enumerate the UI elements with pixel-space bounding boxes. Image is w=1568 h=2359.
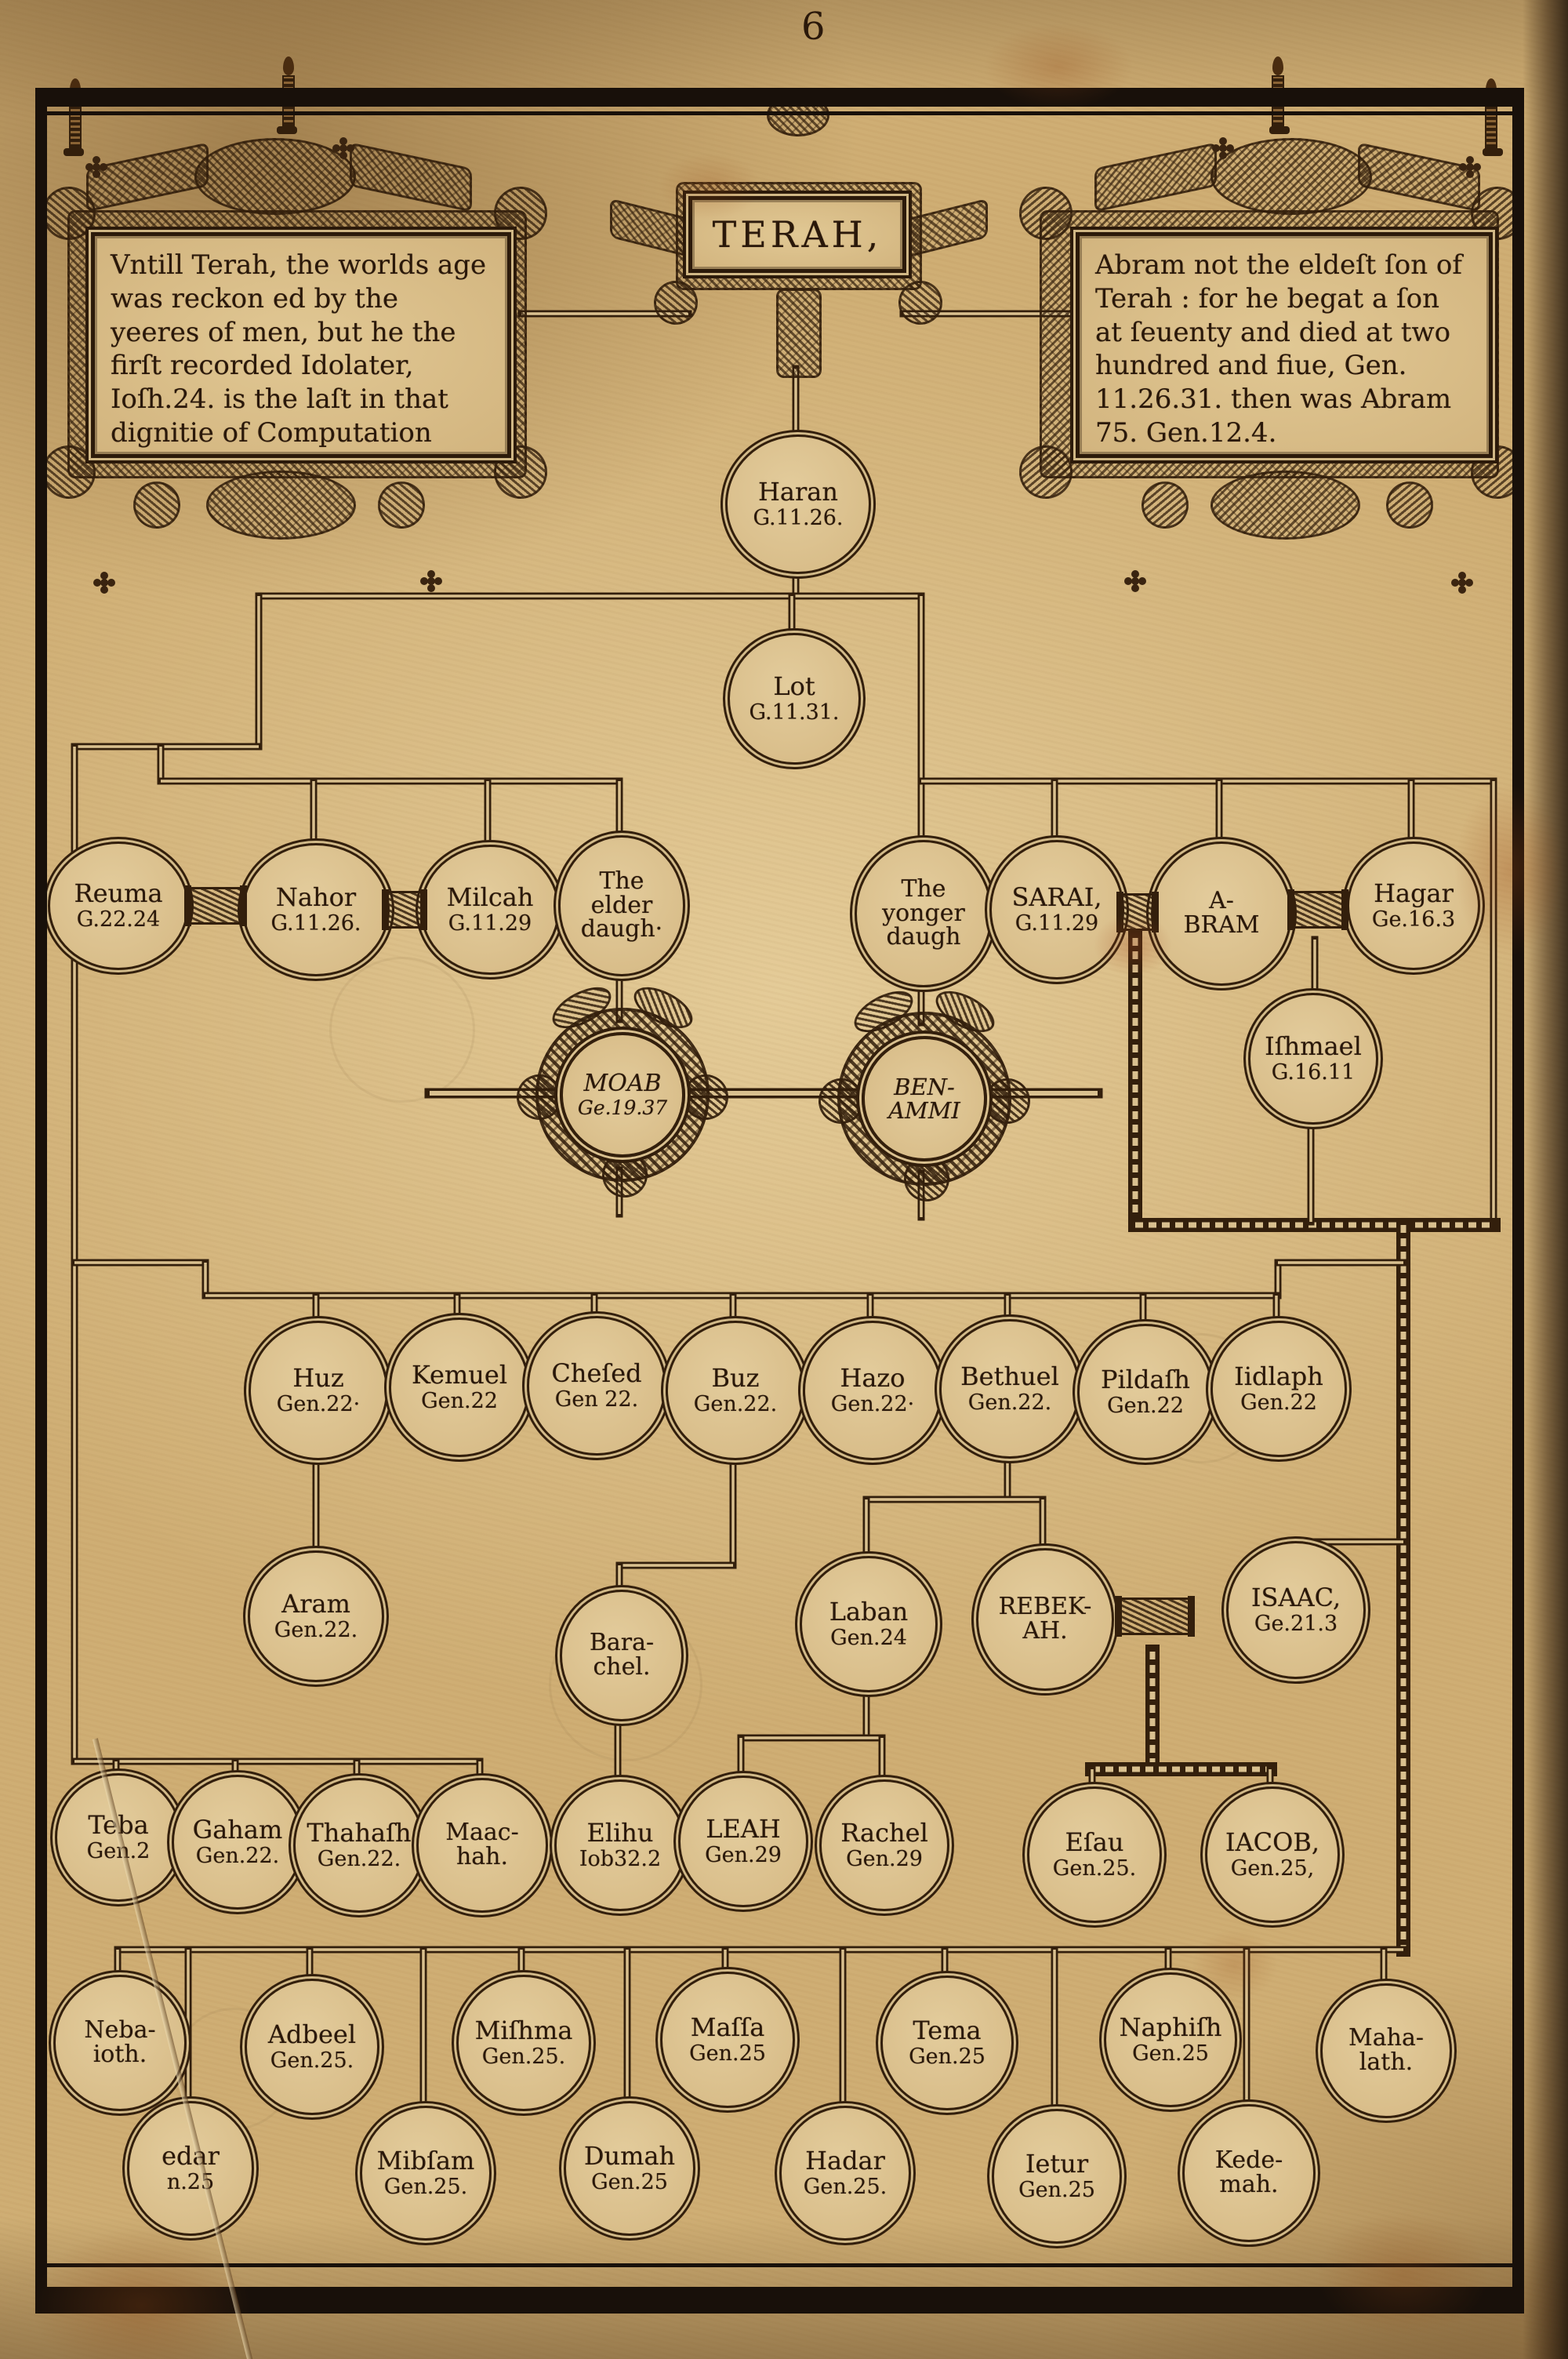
node-scripture-ref: Ge.19.37 (578, 1098, 667, 1118)
clasped-hands-icon (1115, 1598, 1195, 1635)
strapwork-crest (194, 138, 356, 215)
node-scripture-ref: Gen.25. (482, 2046, 565, 2068)
node-scripture-ref: n.25 (167, 2172, 214, 2194)
banner-tail (776, 289, 822, 378)
tree-node-maachah: Maac-hah. (416, 1778, 548, 1913)
strapwork-crest (1210, 138, 1372, 215)
tree-node-mishma: MiſhmaGen.25. (456, 1975, 591, 2111)
node-name: MOAB (583, 1071, 661, 1096)
strapwork-wing (350, 142, 472, 212)
tree-node-rebekah: REBEK-AH. (976, 1548, 1114, 1691)
quatrefoil-icon (100, 579, 108, 587)
node-scripture-ref: Gen.29 (705, 1845, 782, 1866)
tree-node-reuma: ReumaG.22.24 (48, 841, 189, 970)
strapwork-wing (1094, 142, 1217, 212)
node-name: Adbeel (268, 2022, 356, 2048)
node-name: AH. (1022, 1619, 1067, 1644)
quatrefoil-icon (93, 163, 100, 171)
scroll-knob-icon (985, 1078, 1030, 1124)
quatrefoil-icon (1458, 579, 1466, 587)
node-name: Ietur (1025, 2151, 1088, 2177)
node-name: Hadar (805, 2148, 885, 2174)
node-name: AMMI (888, 1099, 960, 1122)
tree-node-aram: AramGen.22. (248, 1550, 384, 1682)
tree-node-rachel: RachelGen.29 (819, 1779, 949, 1911)
tree-node-nahor: NahorG.11.26. (242, 843, 390, 976)
node-scripture-ref: Iob32.2 (579, 1848, 661, 1870)
node-name: Lot (773, 674, 815, 700)
tree-node-iidlaph: IidlaphGen.22 (1210, 1321, 1347, 1457)
strapwork-curl (1386, 482, 1433, 529)
tree-node-laban: LabanGen.24 (800, 1556, 938, 1692)
node-name: Hazo (840, 1365, 905, 1391)
tree-node-moab: MOABGe.19.37 (535, 1008, 710, 1182)
node-name: Hagar (1374, 881, 1454, 907)
node-name: edar (162, 2143, 220, 2169)
scroll-knob-icon (517, 1074, 562, 1120)
node-scripture-ref: G.11.29 (448, 913, 532, 935)
tree-node-tema: TemaGen.25 (880, 1976, 1014, 2110)
node-name: Thahaſh (307, 1820, 411, 1846)
tree-node-adbeel: AdbeelGen.25. (245, 1979, 379, 2115)
node-scripture-ref: Ge.16.3 (1372, 909, 1455, 931)
tree-node-thahash: ThahaſhGen.22. (293, 1778, 425, 1913)
tree-node-nebaioth: Neba-ioth. (53, 1975, 187, 2111)
node-scripture-ref: Gen.25 (909, 2046, 985, 2068)
strapwork-curl (1019, 445, 1073, 499)
tree-node-bethuel: BethuelGen.22. (939, 1319, 1080, 1459)
node-name: Kemuel (412, 1362, 507, 1388)
tree-node-haran: HaranG.11.26. (725, 434, 871, 574)
node-name: Eſau (1065, 1830, 1124, 1856)
node-name: daugh· (581, 918, 662, 942)
note-left: Vntill Terah, the worlds age was reckon … (91, 232, 511, 458)
node-name: REBEK- (999, 1595, 1092, 1619)
node-scripture-ref: G.22.24 (77, 909, 160, 931)
node-scripture-ref: G.11.26. (270, 913, 361, 935)
node-name: Reuma (74, 881, 162, 907)
node-name: BRAM (1183, 914, 1259, 938)
node-name: yonger (882, 902, 965, 926)
scroll-knob-icon (904, 1156, 949, 1201)
tree-node-pildash: PildaſhGen.22 (1077, 1324, 1214, 1460)
node-scripture-ref: Gen.22 (1240, 1392, 1317, 1414)
node-name: LEAH (706, 1816, 781, 1842)
node-name: Milcah (447, 885, 534, 911)
node-name: Maha- (1348, 2026, 1424, 2051)
node-scripture-ref: Gen 22. (555, 1389, 638, 1411)
frame-bottom-thin (35, 2263, 1524, 2267)
node-scripture-ref: Gen.22 (421, 1390, 498, 1412)
tree-node-dumah: DumahGen.25 (564, 2101, 695, 2236)
tree-node-gaham: GahamGen.22. (172, 1775, 303, 1910)
cartouche-core: MOABGe.19.37 (560, 1032, 685, 1158)
strapwork-wing (1358, 142, 1480, 212)
strapwork-curl (1142, 482, 1189, 529)
node-scripture-ref: Gen.29 (846, 1848, 923, 1870)
clasped-hands-icon (184, 887, 247, 925)
strapwork-wing (86, 142, 209, 212)
node-name: Bara- (590, 1631, 654, 1656)
node-name: mah. (1219, 2173, 1278, 2197)
node-name: Bethuel (960, 1364, 1059, 1390)
strapwork-scroll (1210, 471, 1360, 540)
node-scripture-ref: Gen.22. (694, 1394, 777, 1416)
quatrefoil-icon (339, 144, 347, 152)
node-scripture-ref: Gen.22· (831, 1394, 914, 1416)
tree-node-kemuel: KemuelGen.22 (389, 1318, 530, 1457)
frame-bottom-thick (35, 2287, 1524, 2314)
tree-node-ishmael: IſhmaelG.16.11 (1248, 993, 1378, 1125)
node-name: A- (1209, 889, 1234, 914)
tree-node-lot: LotG.11.31. (728, 633, 861, 765)
node-name: ioth. (93, 2043, 147, 2067)
node-name: Aram (281, 1591, 350, 1617)
node-name: Elihu (586, 1820, 653, 1846)
node-name: Maac- (445, 1821, 518, 1845)
tree-node-massa: MaſſaGen.25 (660, 1972, 795, 2108)
tree-node-mibsam: MibſamGen.25. (360, 2106, 492, 2241)
node-scripture-ref: Gen.22. (968, 1392, 1051, 1414)
node-name: daugh (887, 925, 961, 950)
tree-node-hagar: HagarGe.16.3 (1347, 841, 1480, 970)
node-name: Buz (712, 1365, 760, 1391)
node-scripture-ref: Gen.25, (1231, 1858, 1314, 1880)
node-scripture-ref: Gen.25 (1132, 2043, 1209, 2065)
node-scripture-ref: Gen.22· (277, 1394, 360, 1416)
node-scripture-ref: Gen.24 (830, 1627, 907, 1649)
frame-right (1512, 88, 1524, 2314)
node-name: Gaham (193, 1817, 283, 1843)
strapwork-curl (42, 445, 96, 499)
tree-node-hazo: HazoGen.22· (803, 1321, 942, 1460)
clasped-hands-icon (1287, 891, 1348, 929)
tree-node-huz: HuzGen.22· (249, 1321, 388, 1460)
strapwork-scroll (206, 471, 356, 540)
quatrefoil-icon (427, 577, 435, 585)
scroll-knob-icon (683, 1074, 728, 1120)
strapwork-curl (1019, 187, 1073, 240)
node-scripture-ref: Gen.22. (196, 1845, 279, 1867)
quatrefoil-icon (1131, 577, 1139, 585)
tree-node-buz: BuzGen.22. (666, 1321, 805, 1460)
node-name: IACOB, (1225, 1830, 1319, 1856)
tree-node-barachel: Bara-chel. (560, 1590, 684, 1721)
strapwork-curl (378, 482, 425, 529)
node-scripture-ref: Gen.25. (1053, 1858, 1136, 1880)
tree-node-milcah: MilcahG.11.29 (420, 845, 560, 975)
node-scripture-ref: Gen.25 (591, 2172, 668, 2194)
tree-node-teba: TebaGen.2 (55, 1773, 182, 1902)
tree-node-elder: Theelderdaugh· (558, 835, 685, 976)
clasped-hands-icon (382, 891, 427, 929)
node-scripture-ref: Gen.25. (804, 2176, 887, 2198)
node-name: lath. (1359, 2051, 1413, 2075)
node-scripture-ref: G.11.31. (749, 702, 839, 724)
tree-node-elihu: ElihuIob32.2 (554, 1779, 686, 1911)
clasped-hands-icon (1116, 893, 1159, 931)
strapwork-curl (133, 482, 180, 529)
tree-node-iacob: IACOB,Gen.25, (1205, 1787, 1340, 1923)
tree-node-hadar: HadarGen.25. (779, 2106, 911, 2241)
tree-node-kedemah: Kede-mah. (1182, 2104, 1316, 2242)
tree-node-chesed: CheſedGen 22. (527, 1316, 666, 1456)
node-name: elder (591, 894, 653, 918)
node-name: Iſhmael (1265, 1034, 1362, 1060)
quatrefoil-icon (1219, 144, 1227, 152)
node-scripture-ref: Gen.2 (87, 1841, 151, 1863)
frame-top-thick (35, 88, 1524, 107)
tree-node-naphish: NaphiſhGen.25 (1104, 1972, 1237, 2107)
node-name: ISAAC, (1251, 1585, 1341, 1611)
node-name: BEN- (894, 1075, 955, 1099)
node-name: Kede- (1215, 2149, 1283, 2173)
node-scripture-ref: G.16.11 (1272, 1062, 1355, 1084)
node-name: Pildaſh (1101, 1367, 1190, 1393)
node-name: Teba (88, 1812, 148, 1838)
node-name: Miſhma (475, 2018, 573, 2044)
node-scripture-ref: Gen.22. (318, 1848, 401, 1870)
node-scripture-ref: Gen.25. (270, 2050, 354, 2072)
node-name: The (599, 870, 644, 894)
strapwork-curl (42, 187, 96, 240)
tree-node-sarai: SARAI,G.11.29 (989, 840, 1124, 980)
tree-node-yonger: Theyongerdaugh (855, 840, 993, 987)
node-name: Rachel (840, 1820, 928, 1846)
node-scripture-ref: Gen.22 (1107, 1395, 1184, 1417)
node-name: Laban (829, 1599, 909, 1625)
node-scripture-ref: G.11.29 (1015, 913, 1098, 935)
frame-left (35, 88, 47, 2314)
node-scripture-ref: Gen.25 (689, 2043, 766, 2065)
node-scripture-ref: G.11.26. (753, 507, 843, 529)
node-name: Dumah (584, 2143, 675, 2169)
node-name: chel. (593, 1656, 650, 1680)
strapwork-curl (898, 281, 942, 325)
tree-node-abram: A-BRAM (1151, 841, 1292, 986)
scroll-knob-icon (602, 1152, 648, 1198)
strapwork-curl (654, 281, 698, 325)
tree-node-esau: EſauGen.25. (1027, 1787, 1162, 1923)
node-name: Neba- (84, 2019, 155, 2043)
node-name: Haran (758, 479, 838, 505)
node-name: Huz (292, 1365, 343, 1391)
node-scripture-ref: Ge.21.3 (1254, 1613, 1338, 1635)
node-name: Cheſed (551, 1361, 641, 1387)
book-page: 6 (0, 0, 1568, 2359)
tree-node-benammi: BEN-AMMI (837, 1012, 1011, 1186)
banner-title: TERAH, (688, 196, 906, 273)
node-scripture-ref: Gen.22. (274, 1619, 358, 1641)
tree-node-kedar: edarn.25 (127, 2101, 254, 2236)
quatrefoil-icon (1466, 163, 1474, 171)
node-name: Mibſam (377, 2148, 475, 2174)
tree-node-leah: LEAHGen.29 (678, 1776, 808, 1907)
node-name: Maſſa (691, 2015, 765, 2041)
node-scripture-ref: Gen.25 (1018, 2179, 1095, 2201)
cartouche-core: BEN-AMMI (862, 1036, 987, 1161)
tree-node-isaac: ISAAC,Ge.21.3 (1226, 1541, 1366, 1679)
frame-top-thin (35, 111, 1524, 115)
node-name: Nahor (276, 885, 356, 911)
note-right: Abram not the eldeſt ſon of Terah : for … (1076, 232, 1493, 458)
node-name: Iidlaph (1234, 1364, 1323, 1390)
node-name: Naphiſh (1120, 2015, 1222, 2041)
node-scripture-ref: Gen.25. (384, 2176, 467, 2198)
node-name: hah. (456, 1845, 508, 1870)
tree-node-mahalath: Maha-lath. (1320, 1983, 1452, 2118)
node-name: Tema (913, 2018, 981, 2044)
scroll-knob-icon (818, 1078, 864, 1124)
page-number: 6 (801, 5, 826, 49)
node-name: The (901, 878, 946, 902)
node-name: SARAI, (1011, 885, 1102, 911)
tree-node-ietur: IeturGen.25 (992, 2109, 1122, 2244)
